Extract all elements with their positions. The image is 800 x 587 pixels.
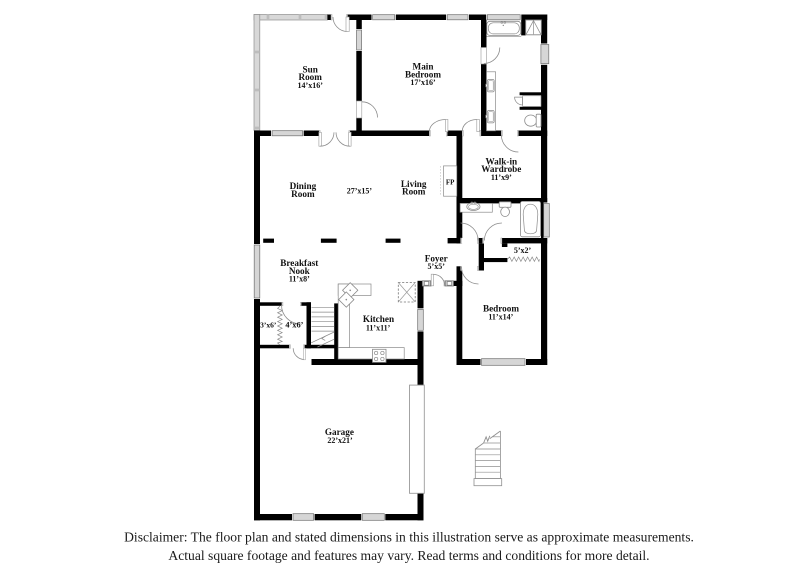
svg-text:3’x6’: 3’x6’ (260, 321, 276, 330)
svg-text:11’x11’: 11’x11’ (366, 324, 391, 333)
svg-text:11’x9’: 11’x9’ (491, 173, 512, 182)
svg-text:14’x16’: 14’x16’ (298, 81, 324, 90)
svg-text:27’x15’: 27’x15’ (347, 186, 373, 195)
svg-text:22’x21’: 22’x21’ (327, 436, 353, 445)
svg-text:4’x6’: 4’x6’ (285, 321, 303, 330)
svg-text:Kitchen: Kitchen (363, 314, 394, 324)
svg-text:5’x2’: 5’x2’ (514, 246, 532, 255)
svg-text:Room: Room (402, 187, 426, 197)
svg-text:11’x8’: 11’x8’ (289, 275, 310, 284)
svg-text:Room: Room (291, 189, 315, 199)
svg-text:11’x14’: 11’x14’ (488, 313, 513, 322)
svg-text:5’x5’: 5’x5’ (428, 262, 446, 271)
svg-text:17’x16’: 17’x16’ (410, 78, 436, 87)
svg-text:Disclaimer: The floor plan and: Disclaimer: The floor plan and stated di… (124, 530, 694, 545)
svg-text:FP: FP (446, 179, 455, 187)
svg-text:Actual square footage and feat: Actual square footage and features may v… (168, 548, 649, 563)
